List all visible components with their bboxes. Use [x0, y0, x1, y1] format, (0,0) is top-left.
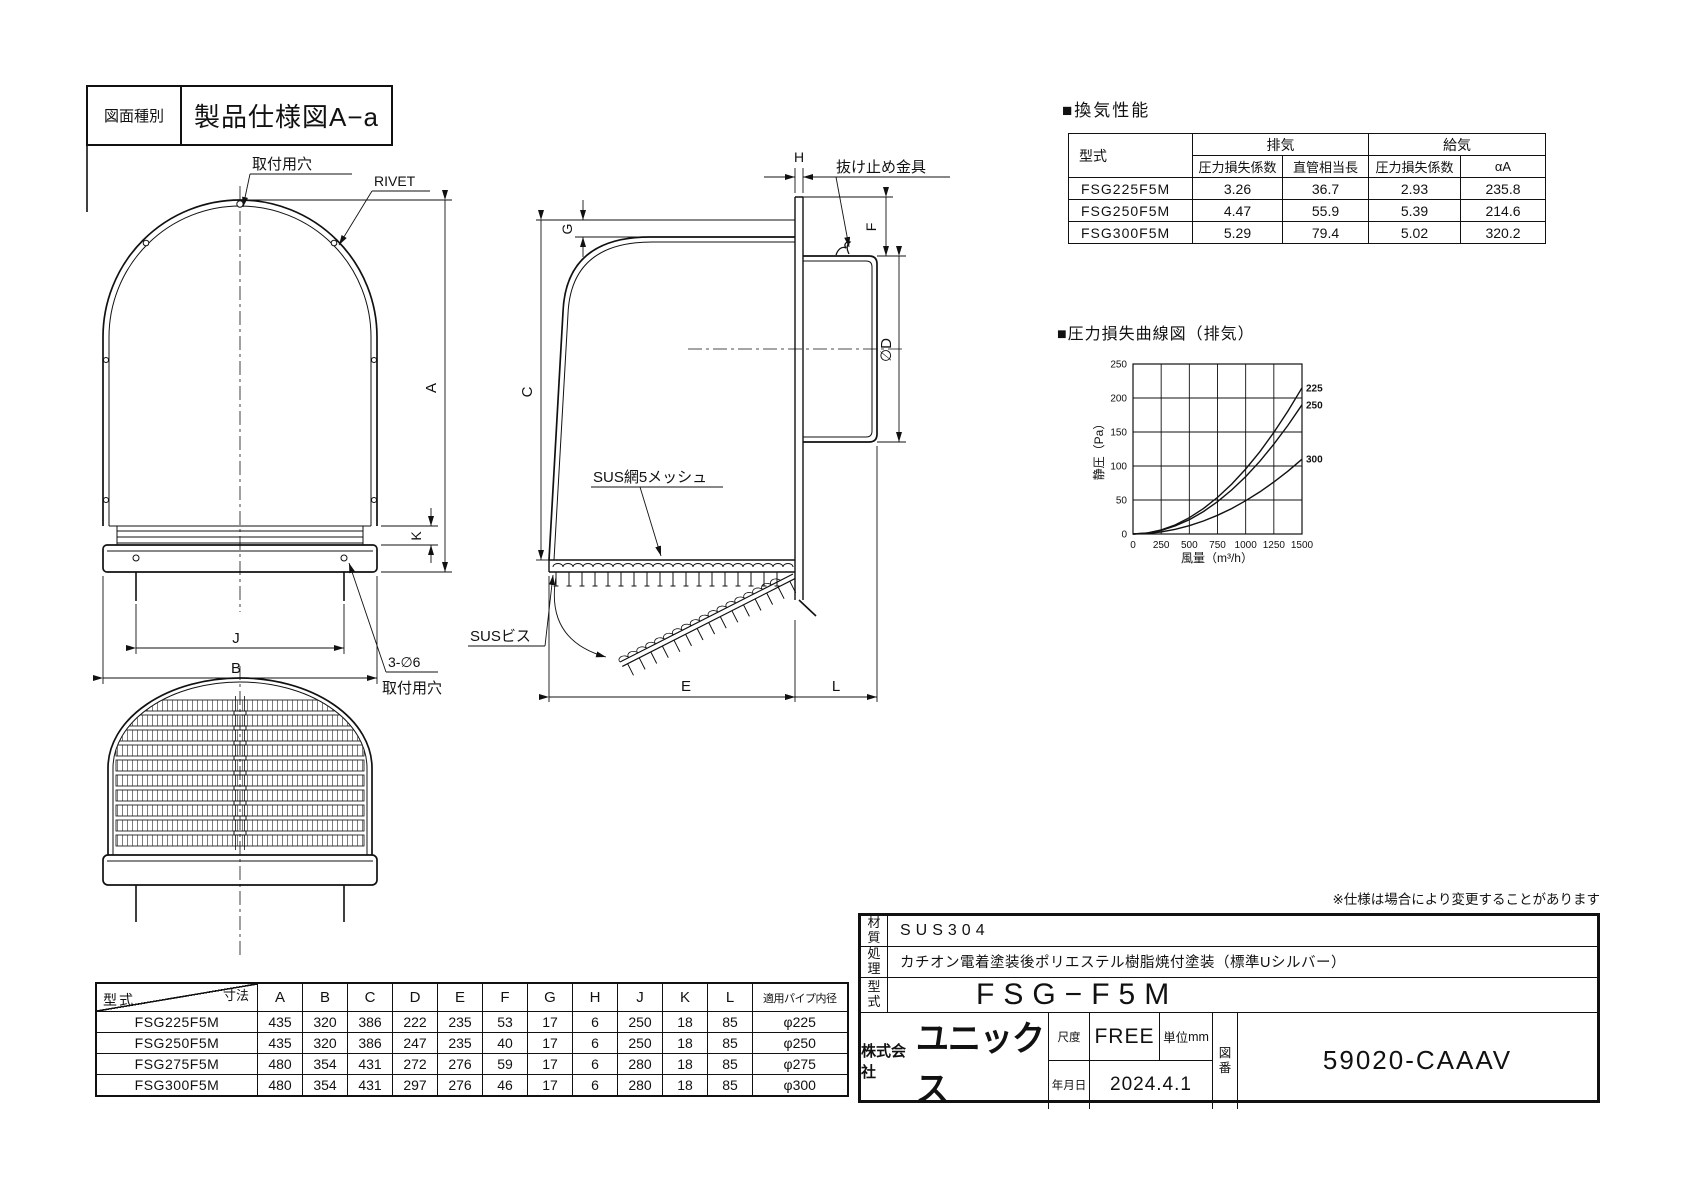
label-retainer-clip: 抜け止め金具: [836, 159, 926, 176]
label-rivet: RIVET: [374, 173, 416, 189]
dim-h: H: [794, 149, 804, 165]
dim-col-K: K: [663, 983, 708, 1012]
dim-value: 435: [258, 1012, 303, 1033]
chart-ytick: 0: [1121, 530, 1127, 541]
panel-scallops: [619, 579, 780, 662]
dim-col-E: E: [438, 983, 483, 1012]
dim-value: 250: [618, 1012, 663, 1033]
dim-col-D: D: [393, 983, 438, 1012]
front-view: [103, 174, 452, 684]
mesh-scallops: [553, 564, 793, 568]
perf-model: FSG225F5M: [1069, 178, 1193, 200]
chart-ytick: 150: [1110, 428, 1127, 439]
perf-value: 79.4: [1283, 222, 1369, 244]
dim-value: φ275: [753, 1054, 848, 1075]
dim-value: 297: [393, 1075, 438, 1097]
dim-row: FSG300F5M480354431297276461762801885φ300: [96, 1075, 848, 1097]
dim-col-B: B: [303, 983, 348, 1012]
perf-value: 320.2: [1461, 222, 1546, 244]
dim-value: 40: [483, 1033, 528, 1054]
label-mounting-hole-top: 取付用穴: [252, 156, 312, 173]
dim-f: F: [863, 223, 879, 232]
dim-value: 85: [708, 1033, 753, 1054]
dim-b: B: [231, 660, 241, 677]
dim-value: 280: [618, 1054, 663, 1075]
pressure-loss-chart: 静圧（Pa） 風量（m³/h） 025050075010001250150005…: [1092, 360, 1323, 566]
doc-type-value: 製品仕様図A−a: [182, 87, 391, 144]
dim-a: A: [423, 383, 440, 393]
perf-value: 2.93: [1369, 178, 1461, 200]
mesh-teeth: [554, 572, 780, 586]
dim-value: 17: [528, 1033, 573, 1054]
chart-curve-label-225: 225: [1306, 383, 1323, 394]
panel-teeth: [628, 581, 796, 675]
chart-ytick: 50: [1116, 496, 1128, 507]
scale-value: FREE: [1090, 1013, 1159, 1061]
perf-subcol: αA: [1461, 156, 1546, 178]
dim-value: 18: [663, 1033, 708, 1054]
dim-value: 280: [618, 1075, 663, 1097]
dim-value: 354: [303, 1075, 348, 1097]
label-mounting-hole-bottom: 取付用穴: [382, 680, 442, 697]
dim-model: FSG275F5M: [96, 1054, 258, 1075]
dim-value: 85: [708, 1075, 753, 1097]
dim-corner-sunpou: 寸法: [223, 985, 249, 1004]
unit-label: 単位: [1163, 1027, 1188, 1046]
dim-value: φ300: [753, 1075, 848, 1097]
chart-ytick: 250: [1110, 360, 1127, 371]
scale-label: 尺度: [1049, 1013, 1090, 1061]
spec-change-note: ※仕様は場合により変更することがあります: [1100, 888, 1600, 908]
dim-col-G: G: [528, 983, 573, 1012]
label-sus-screw: SUSビス: [470, 628, 531, 645]
doc-type-box: 図面種別 製品仕様図A−a: [86, 85, 393, 146]
perf-value: 4.47: [1193, 200, 1283, 222]
dim-col-H: H: [573, 983, 618, 1012]
dim-j: J: [232, 630, 240, 647]
perf-value: 5.29: [1193, 222, 1283, 244]
dim-row: FSG275F5M480354431272276591762801885φ275: [96, 1054, 848, 1075]
material-label: 材質: [861, 916, 888, 946]
dim-g: G: [559, 224, 575, 235]
chart-xlabel: 風量（m³/h）: [1181, 551, 1253, 565]
dim-value: φ225: [753, 1012, 848, 1033]
doc-type-label: 図面種別: [88, 87, 182, 144]
dim-value: 235: [438, 1012, 483, 1033]
drawing-sheet: { "sheet": { "doc_type_label": "図面種別", "…: [0, 0, 1684, 1190]
scale-date-cell: 尺度 FREE 単位mm 年月日 2024.4.1: [1049, 1013, 1213, 1109]
dim-value: 435: [258, 1033, 303, 1054]
dim-value: 6: [573, 1012, 618, 1033]
bottom-view: [103, 666, 377, 958]
chart-xtick: 750: [1209, 540, 1226, 551]
dim-value: 272: [393, 1054, 438, 1075]
dim-value: 431: [348, 1075, 393, 1097]
open-mesh-panel: [620, 574, 795, 666]
perf-value: 214.6: [1461, 200, 1546, 222]
dim-col-A: A: [258, 983, 303, 1012]
dim-value: φ250: [753, 1033, 848, 1054]
dim-value: 320: [303, 1033, 348, 1054]
chart-title: ■圧力損失曲線図（排気）: [1057, 320, 1255, 344]
dim-value: 320: [303, 1012, 348, 1033]
perf-model: FSG250F5M: [1069, 200, 1193, 222]
title-block: 材質 SUS304 処理 カチオン電着塗装後ポリエステル樹脂焼付塗装（標準Uシル…: [858, 913, 1600, 1103]
model-label: 型式: [861, 978, 888, 1012]
dim-value: 17: [528, 1075, 573, 1097]
dim-model: FSG300F5M: [96, 1075, 258, 1097]
model-value: FSG−F5M: [888, 978, 1178, 1012]
finish-value: カチオン電着塗装後ポリエステル樹脂焼付塗装（標準Uシルバー）: [888, 947, 1346, 977]
dim-value: 85: [708, 1012, 753, 1033]
unit-cell: 単位mm: [1159, 1013, 1212, 1061]
date-label: 年月日: [1049, 1061, 1090, 1109]
dim-value: 386: [348, 1033, 393, 1054]
perf-value: 55.9: [1283, 200, 1369, 222]
perf-subcol: 圧力損失係数: [1369, 156, 1461, 178]
dim-value: 235: [438, 1033, 483, 1054]
dim-value: 247: [393, 1033, 438, 1054]
chart-ytick: 200: [1110, 394, 1127, 405]
dim-value: 480: [258, 1075, 303, 1097]
dim-value: 85: [708, 1054, 753, 1075]
dim-value: 354: [303, 1054, 348, 1075]
side-view: [468, 168, 950, 702]
dim-col-L: L: [708, 983, 753, 1012]
dim-value: 17: [528, 1054, 573, 1075]
dim-value: 480: [258, 1054, 303, 1075]
drawing-no-label: 図番: [1213, 1013, 1238, 1109]
dim-value: 18: [663, 1075, 708, 1097]
dim-value: 431: [348, 1054, 393, 1075]
company-logo: 株式会社 ユニックス: [861, 1013, 1049, 1109]
chart-curve-label-300: 300: [1306, 455, 1323, 466]
perf-model: FSG300F5M: [1069, 222, 1193, 244]
perf-subcol: 圧力損失係数: [1193, 156, 1283, 178]
label-mesh: SUS網5メッシュ: [593, 469, 707, 486]
dim-col-C: C: [348, 983, 393, 1012]
dim-value: 18: [663, 1054, 708, 1075]
dim-k: K: [408, 531, 424, 541]
dim-value: 53: [483, 1012, 528, 1033]
dim-phi-d: ∅D: [878, 338, 895, 362]
performance-table: 型式 排気 給気 圧力損失係数 直管相当長 圧力損失係数 αA FSG225F5…: [1068, 133, 1546, 244]
dim-value: 6: [573, 1054, 618, 1075]
perf-value: 36.7: [1283, 178, 1369, 200]
dim-value: 222: [393, 1012, 438, 1033]
perf-value: 5.39: [1369, 200, 1461, 222]
finish-label: 処理: [861, 947, 888, 977]
perf-value: 235.8: [1461, 178, 1546, 200]
dim-value: 17: [528, 1012, 573, 1033]
perf-row: FSG250F5M4.4755.95.39214.6: [1069, 200, 1546, 222]
chart-xtick: 250: [1153, 540, 1170, 551]
dim-col-J: J: [618, 983, 663, 1012]
dim-e: E: [681, 678, 691, 695]
dim-l: L: [832, 678, 840, 695]
dim-value: 6: [573, 1075, 618, 1097]
dim-model: FSG225F5M: [96, 1012, 258, 1033]
performance-title: ■換気性能: [1062, 96, 1150, 121]
drawing-no-value: 59020-CAAAV: [1238, 1013, 1597, 1109]
dim-col-適用パイプ内径: 適用パイプ内径: [753, 983, 848, 1012]
dimension-table: 寸法 型式 ABCDEFGHJKL適用パイプ内径 FSG225F5M435320…: [95, 982, 849, 1097]
dim-value: 46: [483, 1075, 528, 1097]
material-value: SUS304: [888, 916, 990, 946]
chart-xtick: 500: [1181, 540, 1198, 551]
dim-value: 59: [483, 1054, 528, 1075]
dim-value: 6: [573, 1033, 618, 1054]
chart-curve-label-250: 250: [1306, 400, 1323, 411]
dim-corner-cell: 寸法 型式: [96, 983, 258, 1012]
perf-col-model: 型式: [1069, 134, 1193, 178]
dim-value: 276: [438, 1054, 483, 1075]
perf-col-supply: 給気: [1369, 134, 1546, 156]
chart-xtick: 0: [1130, 540, 1136, 551]
company-prefix: 株式会社: [861, 1040, 911, 1082]
dim-row: FSG225F5M435320386222235531762501885φ225: [96, 1012, 848, 1033]
chart-xtick: 1000: [1235, 540, 1258, 551]
dim-c: C: [519, 386, 536, 397]
dim-value: 250: [618, 1033, 663, 1054]
perf-col-exhaust: 排気: [1193, 134, 1369, 156]
perf-row: FSG300F5M5.2979.45.02320.2: [1069, 222, 1546, 244]
unit-value: mm: [1188, 1030, 1209, 1044]
perf-value: 5.02: [1369, 222, 1461, 244]
dim-value: 18: [663, 1012, 708, 1033]
chart-xtick: 1500: [1291, 540, 1314, 551]
dim-corner-katashiki: 型式: [103, 990, 135, 1010]
date-value: 2024.4.1: [1090, 1061, 1212, 1109]
perf-row: FSG225F5M3.2636.72.93235.8: [1069, 178, 1546, 200]
dim-value: 386: [348, 1012, 393, 1033]
perf-value: 3.26: [1193, 178, 1283, 200]
label-three-phi6: 3-∅6: [388, 654, 421, 670]
perf-subcol: 直管相当長: [1283, 156, 1369, 178]
chart-ytick: 100: [1110, 462, 1127, 473]
dim-value: 276: [438, 1075, 483, 1097]
company-name: ユニックス: [916, 1010, 1048, 1111]
chart-xtick: 1250: [1263, 540, 1286, 551]
dim-model: FSG250F5M: [96, 1033, 258, 1054]
dim-row: FSG250F5M435320386247235401762501885φ250: [96, 1033, 848, 1054]
chart-ylabel: 静圧（Pa）: [1092, 418, 1106, 481]
dim-col-F: F: [483, 983, 528, 1012]
